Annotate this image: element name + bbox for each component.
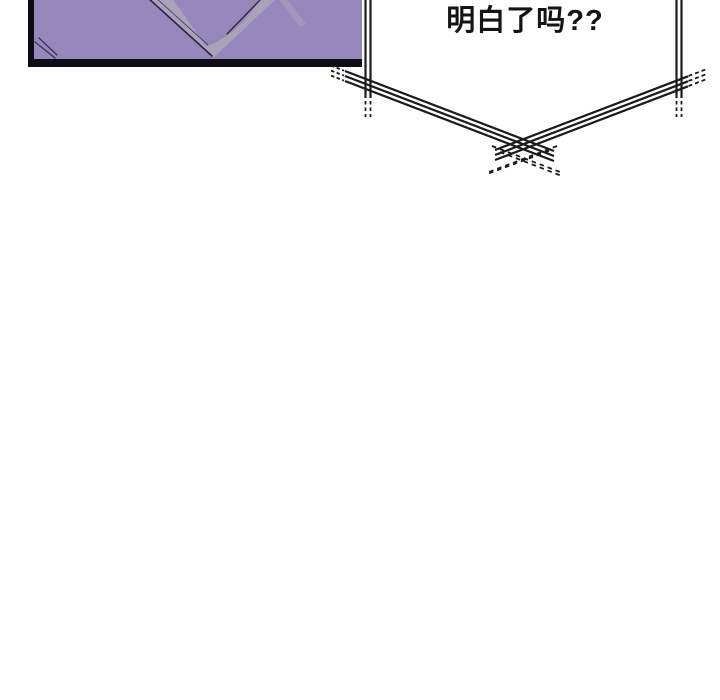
bubble-left-side-dashes [366, 101, 371, 117]
bubble-right-diagonal-dashes [689, 69, 708, 86]
speech-bubble: 明白了吗?? [330, 0, 720, 180]
bubble-left-diagonal-dashes [331, 66, 344, 81]
collar-edge-line-left [148, 0, 212, 56]
corner-hatch-lines [35, 38, 57, 58]
panel-artwork [34, 0, 362, 59]
speech-bubble-text: 明白了吗?? [330, 5, 720, 38]
collar-fold [278, 0, 306, 27]
bubble-right-side-dashes [677, 101, 682, 117]
comic-panel [28, 0, 362, 67]
comic-page: 明白了吗?? [0, 0, 720, 700]
